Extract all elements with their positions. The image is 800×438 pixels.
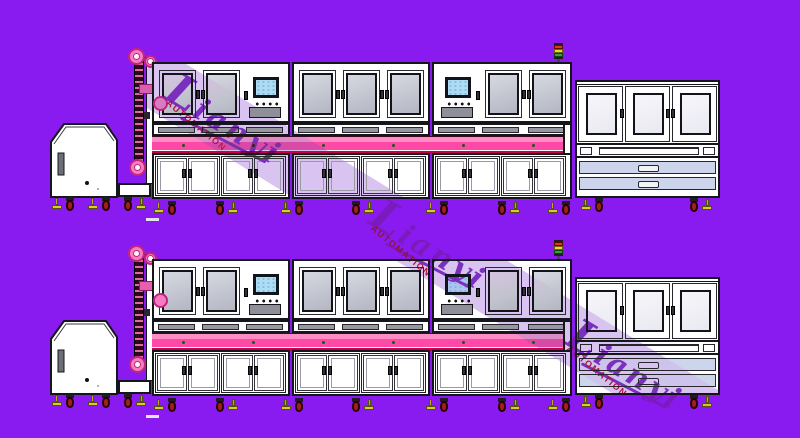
caster (214, 201, 236, 218)
caster (283, 398, 305, 415)
bay2-window-2 (343, 267, 380, 315)
bay-3-lower-cabinets (432, 153, 572, 199)
door-handle (388, 169, 392, 178)
panel-buttons (254, 102, 280, 106)
hmi-monitor (445, 77, 471, 98)
sill-band (292, 123, 430, 136)
caster (122, 197, 144, 214)
door-handle (254, 169, 258, 178)
assembly-line (152, 259, 572, 414)
panel-buttons (446, 102, 472, 106)
door-handle (620, 109, 624, 118)
conveyor-belt (152, 136, 566, 153)
hmi-monitor (253, 77, 279, 98)
caster (214, 398, 236, 415)
tower-light (554, 43, 563, 64)
cabinet-door (328, 355, 358, 391)
bay1-window-2 (203, 70, 240, 118)
hmi-monitor (253, 274, 279, 295)
bay3-window-1 (485, 267, 522, 315)
station-window (633, 290, 664, 332)
door-handle (201, 90, 205, 99)
door-handle (328, 366, 332, 375)
bay3-window-1 (485, 70, 522, 118)
door-handle (388, 366, 392, 375)
station-roof (577, 82, 718, 85)
door-handle (527, 90, 531, 99)
production-line-2 (30, 239, 770, 424)
station-window (586, 93, 617, 135)
cabinet-door (534, 355, 564, 391)
porthole-icon (153, 293, 168, 308)
bay-1-lower-cabinets (152, 153, 290, 199)
bay1-window-2 (203, 267, 240, 315)
cabinet-door (254, 355, 284, 391)
door-handle (188, 169, 192, 178)
panel-handle (476, 288, 480, 297)
door-handle (462, 169, 466, 178)
bay2-window-1 (299, 70, 336, 118)
keyboard-tray (441, 304, 473, 315)
caster (90, 394, 112, 411)
bay-2-lower-cabinets (292, 153, 430, 199)
control-panel (435, 64, 480, 121)
door-handle (385, 287, 389, 296)
keyboard-tray (249, 304, 281, 315)
sprocket-wheel-icon (128, 245, 145, 262)
door-handle (522, 90, 526, 99)
door-handle (468, 366, 472, 375)
tower-light (554, 240, 563, 261)
caster (550, 398, 572, 415)
sill-band (152, 123, 290, 136)
caster (283, 201, 305, 218)
cabinet (435, 156, 500, 196)
bay3-window-2 (529, 267, 566, 315)
caster (54, 394, 76, 411)
door-handle (394, 169, 398, 178)
door-handle (468, 169, 472, 178)
dimension-mark (146, 415, 159, 418)
door-handle (201, 287, 205, 296)
feeder-outline (50, 318, 120, 396)
hmi-monitor (445, 274, 471, 295)
caster (428, 398, 450, 415)
drawer-1 (579, 358, 716, 371)
bay3-window-2 (529, 70, 566, 118)
caster (550, 201, 572, 218)
control-panel (435, 261, 480, 318)
door-handle (385, 90, 389, 99)
door-handle (196, 90, 200, 99)
feeder-slot-window (58, 350, 64, 372)
line-end-frame (563, 123, 572, 155)
door-handle (534, 169, 538, 178)
station-window (680, 290, 711, 332)
door-handle (534, 366, 538, 375)
door-handle (248, 169, 252, 178)
sill-band (152, 320, 290, 333)
bay2-window-3 (387, 70, 424, 118)
worktop-slot (580, 147, 592, 155)
station-roof (577, 279, 718, 282)
drawing-canvas (0, 0, 800, 438)
worktop-slot (599, 344, 699, 352)
bay1-window-1 (159, 267, 196, 315)
drawer-2 (579, 374, 716, 387)
worktop-slot (599, 147, 699, 155)
cabinet-door (188, 355, 218, 391)
caster (122, 394, 144, 411)
sprocket-wheel-icon (128, 48, 145, 65)
bay2-window-2 (343, 70, 380, 118)
panel-handle (244, 288, 248, 297)
offline-drawer-station (575, 277, 720, 395)
sill-band (432, 123, 572, 136)
door-handle (522, 287, 526, 296)
line-end-frame (563, 320, 572, 352)
keyboard-tray (249, 107, 281, 118)
caster (688, 198, 710, 215)
drawer-handle (638, 378, 659, 385)
cabinet (295, 156, 360, 196)
worktop-slot (703, 147, 715, 155)
feeder-outfeed-table (118, 183, 151, 197)
bay-2-upper (292, 62, 430, 123)
caster (496, 201, 518, 218)
cabinet (501, 353, 566, 393)
feeder-outline (50, 121, 120, 199)
feeder-hopper (50, 318, 120, 396)
bay-2-lower-cabinets (292, 350, 430, 396)
elevator-chain (134, 56, 144, 168)
door-handle (462, 366, 466, 375)
station-door-3 (672, 86, 717, 142)
bay-1-lower-cabinets (152, 350, 290, 396)
station-window (633, 93, 664, 135)
worktop-slot (703, 344, 715, 352)
cabinet-door (468, 158, 498, 194)
caster (90, 197, 112, 214)
feeder-outfeed-table (118, 380, 151, 394)
assembly-line (152, 62, 572, 217)
door-handle (322, 366, 326, 375)
cabinet (361, 156, 426, 196)
door-handle (671, 109, 675, 118)
door-handle (182, 169, 186, 178)
worktop-band (577, 143, 718, 158)
caster (156, 201, 178, 218)
door-handle (188, 366, 192, 375)
drawer-2 (579, 177, 716, 190)
door-handle (620, 306, 624, 315)
door-handle (336, 287, 340, 296)
conveyor-belt (152, 333, 566, 350)
caster (428, 201, 450, 218)
door-handle (666, 109, 670, 118)
station-door-1 (578, 86, 623, 142)
door-handle (527, 287, 531, 296)
panel-handle (476, 91, 480, 100)
door-handle (328, 169, 332, 178)
elevator-chain (134, 253, 144, 365)
panel-handle (244, 91, 248, 100)
sprocket-wheel-icon (129, 356, 146, 373)
elevator-bracket (144, 112, 150, 119)
cabinet (501, 156, 566, 196)
station-door-2 (625, 86, 670, 142)
bay1-window-1 (159, 70, 196, 118)
cabinet-door (254, 158, 284, 194)
cabinet-door (468, 355, 498, 391)
caster (688, 395, 710, 412)
sprocket-wheel-icon (129, 159, 146, 176)
door-handle (254, 366, 258, 375)
bay-1-upper (152, 259, 290, 320)
bay-3-lower-cabinets (432, 350, 572, 396)
cabinet (221, 353, 286, 393)
sill-band (292, 320, 430, 333)
door-handle (528, 169, 532, 178)
door-handle (182, 366, 186, 375)
door-handle (196, 287, 200, 296)
bay2-window-3 (387, 267, 424, 315)
caster (583, 395, 605, 412)
offline-drawer-station (575, 80, 720, 198)
cabinet-door (394, 158, 424, 194)
bay-3-upper (432, 259, 572, 320)
drawer-1 (579, 161, 716, 174)
door-handle (666, 306, 670, 315)
bay2-window-1 (299, 267, 336, 315)
cabinet-door (328, 158, 358, 194)
door-handle (322, 169, 326, 178)
sill-band (432, 320, 572, 333)
cabinet (155, 156, 220, 196)
station-door-2 (625, 283, 670, 339)
door-handle (380, 287, 384, 296)
panel-buttons (446, 299, 472, 303)
drawer-handle (638, 362, 659, 369)
caster (156, 398, 178, 415)
dimension-mark (146, 218, 159, 221)
keyboard-tray (441, 107, 473, 118)
cabinet-door (394, 355, 424, 391)
station-door-3 (672, 283, 717, 339)
cabinet-door (188, 158, 218, 194)
door-handle (341, 287, 345, 296)
cabinet (435, 353, 500, 393)
cabinet (295, 353, 360, 393)
station-door-1 (578, 283, 623, 339)
worktop-slot (580, 344, 592, 352)
feeder-slot-window (58, 153, 64, 175)
door-handle (248, 366, 252, 375)
door-handle (336, 90, 340, 99)
door-handle (380, 90, 384, 99)
caster (583, 198, 605, 215)
control-panel (243, 261, 288, 318)
feeder-hopper (50, 121, 120, 199)
elevator-bracket (144, 309, 150, 316)
drawer-handle (638, 181, 659, 188)
cabinet (155, 353, 220, 393)
drawer-handle (638, 165, 659, 172)
bay-1-upper (152, 62, 290, 123)
feeder-knob (85, 181, 89, 185)
panel-buttons (254, 299, 280, 303)
door-handle (394, 366, 398, 375)
cabinet-door (534, 158, 564, 194)
worktop-band (577, 340, 718, 355)
caster (350, 398, 372, 415)
porthole-icon (153, 96, 168, 111)
control-panel (243, 64, 288, 121)
door-handle (528, 366, 532, 375)
door-handle (341, 90, 345, 99)
cabinet (221, 156, 286, 196)
feeder-knob (85, 378, 89, 382)
station-window (680, 93, 711, 135)
production-line-1 (30, 42, 770, 227)
bay-2-upper (292, 259, 430, 320)
caster (54, 197, 76, 214)
door-handle (671, 306, 675, 315)
cabinet (361, 353, 426, 393)
caster (496, 398, 518, 415)
caster (350, 201, 372, 218)
bay-3-upper (432, 62, 572, 123)
station-window (586, 290, 617, 332)
